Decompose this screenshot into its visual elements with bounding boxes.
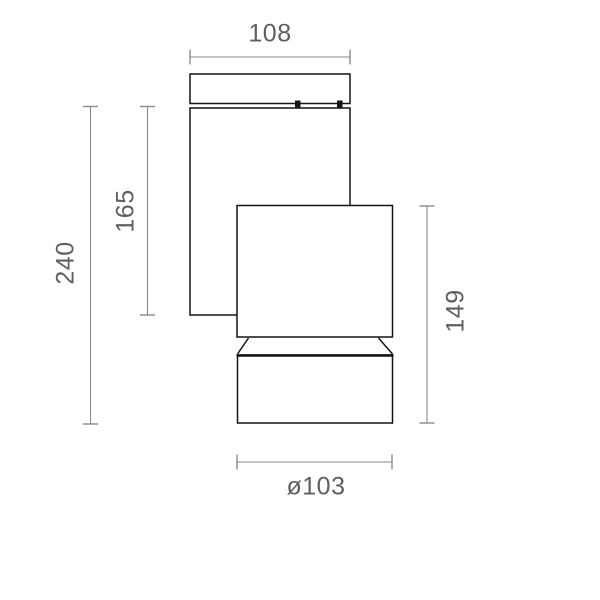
dim-cap-width [190, 50, 350, 65]
fixture-drawing [0, 0, 600, 600]
neck-chamfer-left [238, 338, 249, 354]
head-outline [237, 206, 393, 338]
dim-body-height [140, 107, 155, 316]
neck-chamfer-right [379, 338, 393, 354]
dim-label-body-height: 165 [114, 189, 139, 232]
shade-outline [238, 355, 393, 423]
dim-label-cap-width: 108 [248, 22, 291, 47]
dim-label-head-assembly-height: 149 [444, 289, 469, 332]
cap-outline [190, 74, 350, 104]
dim-shade-diameter [237, 455, 392, 470]
dimension-drawing-page: 108 165 240 149 ø103 [0, 0, 600, 600]
dim-head-assembly-height [420, 206, 435, 423]
dim-label-shade-diameter: ø103 [287, 475, 346, 500]
dim-label-overall-height: 240 [54, 241, 79, 284]
dim-overall-height [83, 107, 98, 425]
